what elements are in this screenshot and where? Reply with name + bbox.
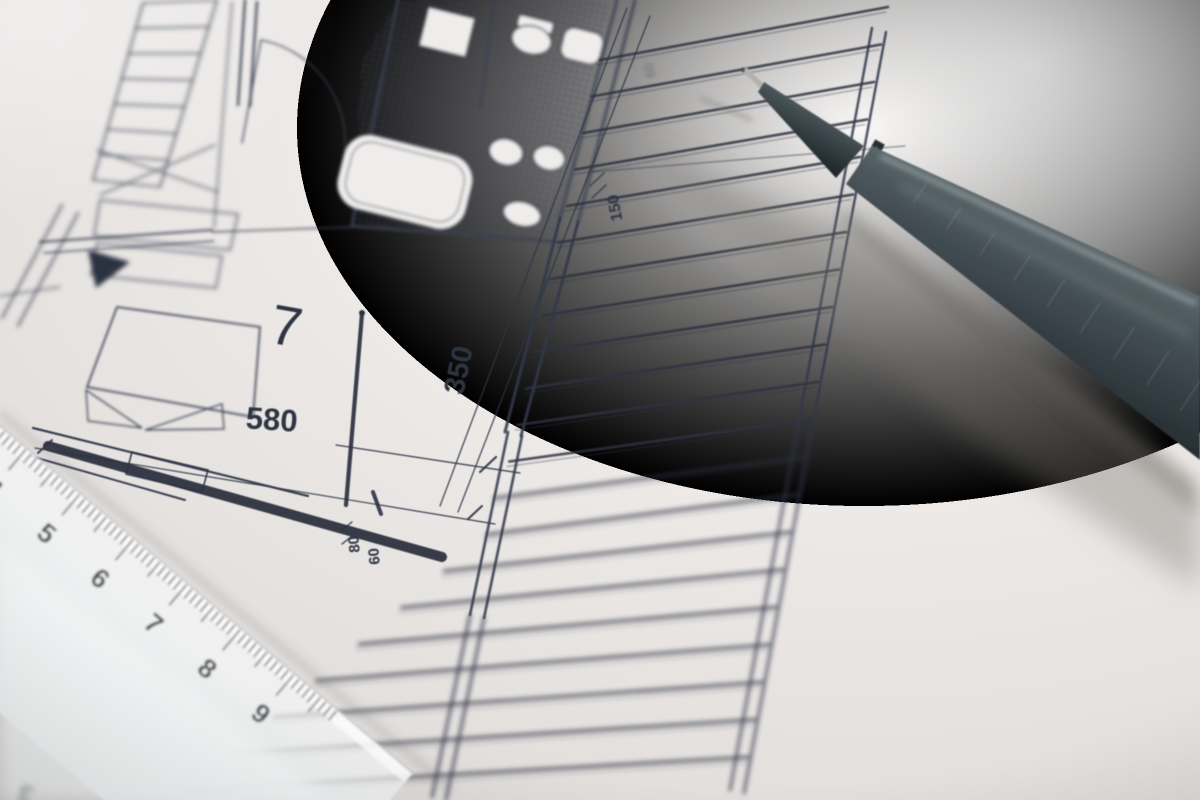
photo-canvas: 60 <box>0 0 1200 800</box>
photo-stage: 60 <box>0 0 1200 800</box>
vignette <box>0 0 1200 800</box>
